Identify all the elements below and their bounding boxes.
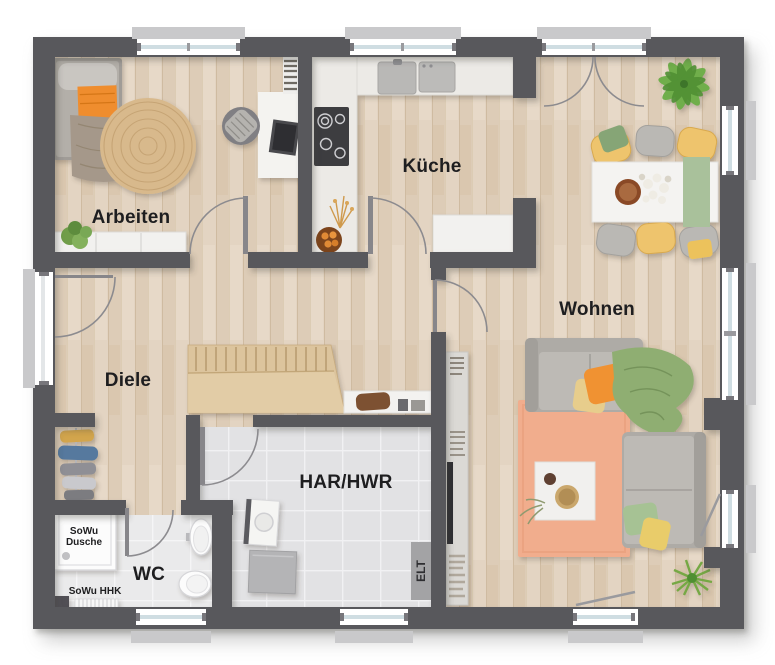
dining-table [592,157,718,227]
wall-shelf-books [283,57,298,94]
room-label-diele: Diele [105,370,151,391]
tv [447,462,453,544]
utility-tile-floor [200,427,431,607]
wall-hall-stub [431,268,446,280]
wall-pier-b [704,547,722,568]
window-kitchen [345,27,461,55]
toilet [179,571,211,597]
wall-kitchen-right-top [513,57,536,98]
sofa-right [622,432,706,552]
label-shower-line1: SoWu [70,526,98,537]
stairs [188,345,345,413]
napkin-yellow [687,238,713,259]
wall-hall-utility [186,415,200,500]
vase [544,473,556,485]
office-chair [222,107,260,145]
faucet [393,59,402,65]
round-jute-rug [100,98,196,194]
room-label-kueche: Küche [402,156,461,177]
label-shower-line2: Dusche [66,537,103,548]
wall-kitchen-right-bottom [513,198,536,268]
bag [355,392,390,411]
window-arbeiten [132,27,245,55]
wall-arbeiten-right [298,57,312,252]
wall-wc-right [212,500,232,607]
window-mullion [724,331,736,336]
laptop [269,119,300,155]
wall-pier-a [704,398,722,430]
room-label-har-hwr: HAR/HWR [299,472,392,493]
utility-unit [248,550,296,594]
kitchen-island [433,215,513,255]
wall-living-left [431,332,446,607]
room-label-wohnen: Wohnen [559,299,635,320]
label-heater: SoWu HHK [69,586,122,597]
wall-wc-top-left [33,500,126,515]
tv-sideboard [446,352,468,605]
floor-plan: ELT Arbeiten Küche Wohnen Diele HAR/HWR … [0,0,775,665]
wall-niche-top [33,413,95,427]
wall-arbeiten-bottom-right [248,252,312,268]
table-runner [683,157,710,227]
room-label-wc: WC [133,564,165,585]
hall-console [344,391,431,413]
washing-machine [243,499,279,546]
wall-kitchen-bottom-left [312,252,368,268]
wall-arbeiten-bottom-left [33,252,190,268]
cooktop [314,107,349,166]
elt-panel: ELT [411,542,431,600]
wall-utility-top [253,415,431,427]
elt-label: ELT [414,559,428,581]
room-label-arbeiten: Arbeiten [92,207,171,228]
shower-drain [62,552,70,560]
